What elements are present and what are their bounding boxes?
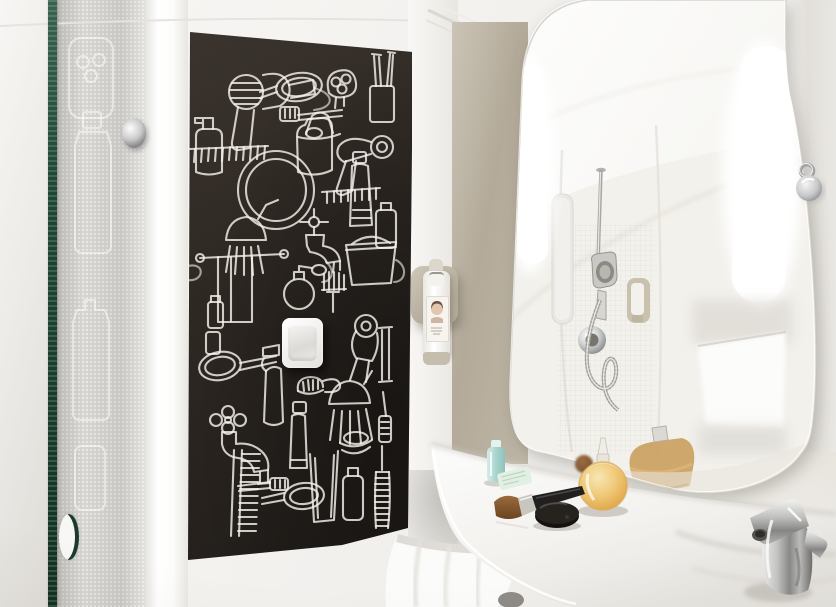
mural-small-bottles-icon xyxy=(206,296,223,354)
mural-big-tap-icon xyxy=(210,406,270,484)
mural-hairdryer3-icon xyxy=(350,315,378,382)
reflected-towel-shelf xyxy=(698,332,786,428)
light-switch-rocker[interactable] xyxy=(288,324,317,361)
mural-shampoo-jug-icon xyxy=(297,118,332,175)
mural-afro-pick-icon xyxy=(322,272,346,312)
mural-tap-icon xyxy=(300,209,340,272)
mural-pump-bottle-icon xyxy=(195,118,222,175)
mural-comb-icon xyxy=(190,146,268,162)
ceiling-seam xyxy=(0,14,460,36)
reflected-dispenser xyxy=(627,278,650,323)
door-handle-hole xyxy=(59,514,79,560)
mural-soap-dish-icon xyxy=(340,432,372,453)
door-frame xyxy=(145,0,188,607)
compact-mirror xyxy=(535,502,579,528)
mural-towel-rail-icon xyxy=(196,250,288,322)
mural-toothbrush-cup-icon xyxy=(370,52,395,122)
wall-hook xyxy=(792,158,826,208)
mural-atomizer-icon xyxy=(284,265,326,309)
door-knob xyxy=(122,118,146,148)
light-switch[interactable] xyxy=(282,318,323,368)
left-light-strip xyxy=(504,55,556,275)
mural-bottle2-icon xyxy=(343,468,363,520)
mural-glass-icon xyxy=(310,451,338,522)
glass-edge-green xyxy=(48,0,57,607)
mural-shaver-icon xyxy=(328,70,356,108)
right-light-strip xyxy=(722,40,802,310)
mural-bucket-icon xyxy=(346,237,396,285)
counter-items xyxy=(470,430,650,540)
perfume-bottle xyxy=(579,438,627,510)
mural-comb-vertical-icon xyxy=(231,450,260,536)
mural-squeegee-icon xyxy=(379,327,392,382)
mural-toothpaste2-icon xyxy=(290,402,307,468)
bathroom-photo xyxy=(0,0,836,607)
